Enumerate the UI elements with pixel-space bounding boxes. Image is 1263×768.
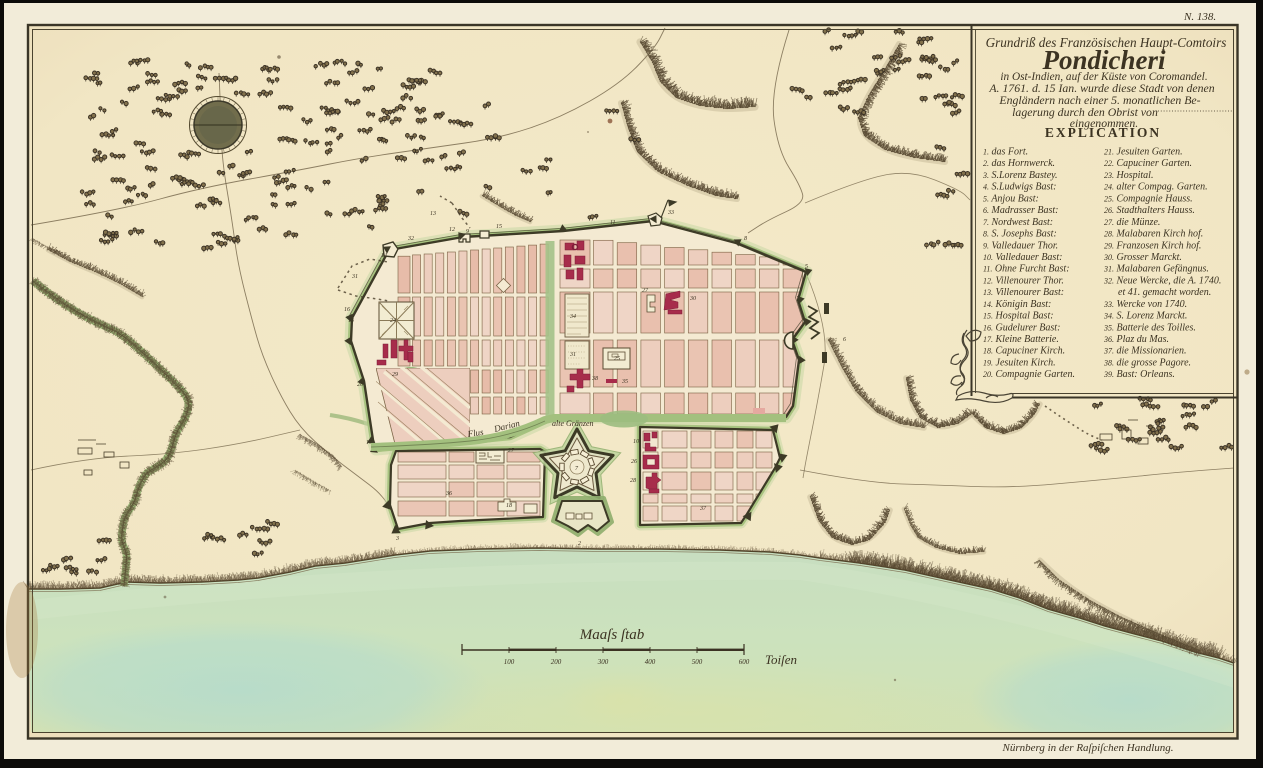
- svg-text:19. Jesuiten Kirch.: 19. Jesuiten Kirch.: [983, 358, 1056, 369]
- svg-text:34. S. Lorenz Marckt.: 34. S. Lorenz Marckt.: [1103, 311, 1187, 322]
- svg-text:11: 11: [610, 220, 616, 226]
- svg-text:30. Grosser Marckt.: 30. Grosser Marckt.: [1103, 252, 1182, 263]
- svg-text:29. Franzosen Kirch hof.: 29. Franzosen Kirch hof.: [1104, 240, 1201, 251]
- svg-text:8: 8: [744, 236, 747, 242]
- svg-text:15. Hospital Bast:: 15. Hospital Bast:: [983, 311, 1054, 322]
- svg-text:31: 31: [351, 274, 358, 280]
- svg-text:32: 32: [407, 236, 414, 242]
- svg-text:15: 15: [496, 224, 502, 230]
- svg-text:16: 16: [344, 307, 350, 313]
- svg-text:27: 27: [508, 448, 515, 454]
- svg-text:6: 6: [843, 337, 846, 343]
- svg-text:EXPLICATION: EXPLICATION: [1045, 125, 1161, 140]
- svg-text:100: 100: [504, 658, 515, 666]
- svg-text:12. Villenourer Thor.: 12. Villenourer Thor.: [983, 275, 1064, 286]
- svg-text:400: 400: [645, 658, 656, 666]
- svg-text:1. das Fort.: 1. das Fort.: [983, 147, 1028, 158]
- svg-text:14. Königin Bast:: 14. Königin Bast:: [983, 299, 1051, 310]
- svg-text:24. alter Compag. Garten.: 24. alter Compag. Garten.: [1104, 182, 1208, 193]
- svg-text:31: 31: [569, 352, 576, 358]
- svg-text:39. Bast: Orleans.: 39. Bast: Orleans.: [1103, 369, 1175, 380]
- svg-text:17: 17: [366, 440, 373, 446]
- svg-text:35: 35: [621, 379, 628, 385]
- svg-text:18. Capuciner Kirch.: 18. Capuciner Kirch.: [983, 346, 1065, 357]
- svg-text:3: 3: [395, 536, 399, 542]
- svg-text:18: 18: [506, 503, 512, 509]
- svg-text:35. Batterie des Toilles.: 35. Batterie des Toilles.: [1103, 322, 1196, 333]
- svg-text:32. Neue Wercke, die A. 1740.: 32. Neue Wercke, die A. 1740.: [1103, 275, 1221, 286]
- svg-text:3. S.Lorenz Bastey.: 3. S.Lorenz Bastey.: [982, 170, 1058, 181]
- svg-text:28: 28: [630, 478, 636, 484]
- svg-text:10. Valledauer Bast:: 10. Valledauer Bast:: [983, 252, 1062, 263]
- svg-text:600: 600: [739, 658, 750, 666]
- svg-text:13: 13: [348, 318, 354, 324]
- svg-text:et 41. gemacht worden.: et 41. gemacht worden.: [1118, 287, 1211, 298]
- svg-text:alte Gränzen: alte Gränzen: [552, 419, 594, 428]
- svg-text:34: 34: [569, 313, 576, 320]
- svg-text:Nürnberg in der Raſpiſchen Han: Nürnberg in der Raſpiſchen Handlung.: [1002, 742, 1174, 754]
- svg-text:8. S. Josephs Bast:: 8. S. Josephs Bast:: [983, 229, 1057, 240]
- svg-text:21. Jesuiten Garten.: 21. Jesuiten Garten.: [1104, 147, 1183, 158]
- svg-text:9. Valledauer Thor.: 9. Valledauer Thor.: [983, 240, 1058, 251]
- svg-text:9: 9: [466, 229, 469, 235]
- svg-text:37. die Missionarien.: 37. die Missionarien.: [1103, 346, 1187, 357]
- svg-text:25: 25: [614, 356, 620, 362]
- svg-text:20. Compagnie Garten.: 20. Compagnie Garten.: [983, 369, 1075, 380]
- svg-text:200: 200: [551, 658, 562, 666]
- svg-text:13: 13: [430, 211, 436, 217]
- svg-text:2: 2: [578, 541, 581, 547]
- svg-text:37: 37: [699, 506, 707, 512]
- svg-text:24: 24: [390, 317, 396, 324]
- svg-text:38. die grosse Pagore.: 38. die grosse Pagore.: [1103, 358, 1191, 369]
- svg-text:13. Villenourer Bast:: 13. Villenourer Bast:: [983, 287, 1064, 298]
- svg-text:10: 10: [633, 439, 639, 445]
- svg-text:500: 500: [692, 658, 703, 666]
- svg-text:N. 138.: N. 138.: [1183, 11, 1216, 23]
- svg-text:14: 14: [381, 252, 387, 259]
- svg-text:11. Ohne Furcht Bast:: 11. Ohne Furcht Bast:: [983, 264, 1070, 275]
- svg-text:Maaſs ſtab: Maaſs ſtab: [579, 627, 645, 643]
- svg-text:6. Madrasser Bast:: 6. Madrasser Bast:: [983, 205, 1058, 216]
- svg-text:22. Capuciner Garten.: 22. Capuciner Garten.: [1104, 158, 1192, 169]
- svg-text:7. Nordwest Bast:: 7. Nordwest Bast:: [983, 217, 1053, 228]
- svg-text:2. das Hornwerck.: 2. das Hornwerck.: [983, 158, 1055, 169]
- svg-text:23. Hospital.: 23. Hospital.: [1104, 170, 1153, 181]
- svg-text:29: 29: [392, 372, 398, 378]
- svg-text:5. Anjou Bast:: 5. Anjou Bast:: [983, 193, 1039, 204]
- svg-text:26. Stadthalters Hauss.: 26. Stadthalters Hauss.: [1104, 205, 1195, 216]
- svg-text:31. Malabaren Gefängnus.: 31. Malabaren Gefängnus.: [1103, 264, 1209, 275]
- svg-text:Toiſen: Toiſen: [765, 652, 797, 667]
- svg-text:17. Kleine Batterie.: 17. Kleine Batterie.: [983, 334, 1059, 345]
- svg-text:27: 27: [642, 288, 649, 294]
- svg-text:36: 36: [445, 491, 452, 497]
- svg-text:12: 12: [449, 227, 455, 233]
- svg-text:16. Gudelurer Bast:: 16. Gudelurer Bast:: [983, 322, 1060, 333]
- svg-text:25. Compagnie Hauss.: 25. Compagnie Hauss.: [1104, 193, 1193, 204]
- svg-text:26: 26: [357, 382, 363, 388]
- svg-text:30: 30: [689, 296, 696, 302]
- svg-text:36. Plaz du Mas.: 36. Plaz du Mas.: [1103, 334, 1169, 345]
- svg-text:28. Malabaren Kirch hof.: 28. Malabaren Kirch hof.: [1104, 229, 1203, 240]
- svg-text:27. die Münze.: 27. die Münze.: [1104, 217, 1160, 228]
- svg-text:33: 33: [667, 210, 674, 216]
- svg-text:5: 5: [805, 264, 808, 270]
- svg-text:26: 26: [631, 459, 637, 465]
- svg-text:33. Wercke von 1740.: 33. Wercke von 1740.: [1103, 299, 1187, 310]
- svg-text:38: 38: [591, 376, 598, 382]
- svg-text:4. S.Ludwigs Bast:: 4. S.Ludwigs Bast:: [983, 182, 1057, 193]
- svg-text:300: 300: [597, 658, 609, 666]
